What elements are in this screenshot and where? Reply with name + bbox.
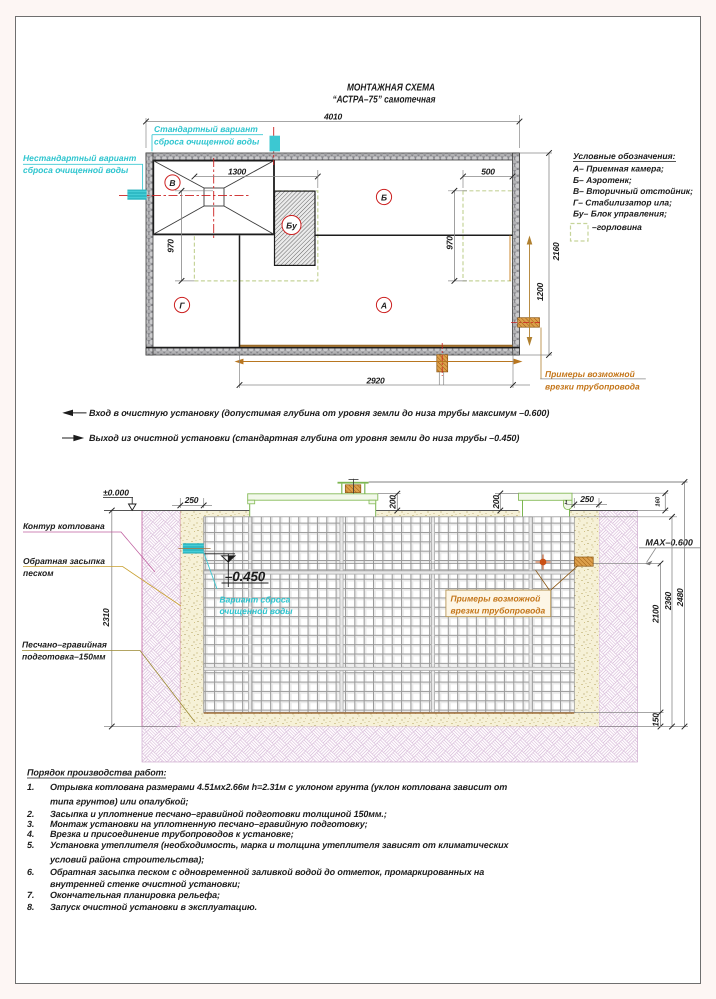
svg-text:Отрывка котлована размерами 4.: Отрывка котлована размерами 4.51мх2.66м … [50, 782, 507, 792]
svg-text:2480: 2480 [675, 588, 685, 608]
svg-text:4010: 4010 [323, 112, 343, 122]
svg-text:В– Вторичный отстойник;: В– Вторичный отстойник; [573, 186, 693, 196]
svg-text:МАХ–0.600: МАХ–0.600 [645, 537, 693, 547]
svg-text:250: 250 [184, 495, 199, 505]
svg-text:врезки трубопровода: врезки трубопровода [545, 382, 640, 392]
svg-text:Б– Аэротенк;: Б– Аэротенк; [573, 175, 632, 185]
svg-text:условий района строительства);: условий района строительства); [49, 855, 204, 865]
svg-text:Вход в очистную установку (доп: Вход в очистную установку (допустимая гл… [89, 408, 549, 418]
svg-text:200: 200 [491, 495, 501, 510]
svg-text:песком: песком [23, 568, 54, 578]
svg-text:В: В [169, 178, 175, 188]
svg-text:160: 160 [655, 496, 662, 507]
svg-text:очищенной воды: очищенной воды [220, 606, 294, 616]
svg-text:Обратная засыпка: Обратная засыпка [23, 556, 105, 566]
svg-text:1200: 1200 [535, 282, 545, 301]
svg-text:Вариант сброса: Вариант сброса [220, 595, 291, 605]
svg-text:Бу– Блок управления;: Бу– Блок управления; [573, 209, 667, 219]
svg-text:Примеры возможной: Примеры возможной [545, 369, 636, 379]
svg-text:типа грунтов) или опалубкой;: типа грунтов) или опалубкой; [50, 797, 189, 807]
svg-text:Условные обозначения:: Условные обозначения: [573, 151, 676, 161]
svg-text:–горловина: –горловина [592, 222, 642, 232]
svg-text:Стандартный вариант: Стандартный вариант [154, 124, 258, 134]
svg-text:Нестандартный вариант: Нестандартный вариант [23, 153, 137, 163]
svg-text:1300: 1300 [228, 167, 247, 177]
svg-text:Установка утеплителя (необходи: Установка утеплителя (необходимость, мар… [50, 840, 510, 850]
svg-text:1.: 1. [27, 782, 34, 792]
svg-text:Обратная засыпка песком с одно: Обратная засыпка песком с одновременной … [50, 867, 484, 877]
svg-text:970: 970 [445, 236, 455, 250]
svg-text:7.: 7. [27, 890, 34, 900]
svg-text:А– Приемная камера;: А– Приемная камера; [572, 164, 664, 174]
svg-text:подготовка–150мм: подготовка–150мм [22, 652, 106, 662]
svg-text:врезки трубопровода: врезки трубопровода [451, 606, 546, 616]
svg-text:Засыпка и уплотнение песчано–г: Засыпка и уплотнение песчано–гравийной п… [50, 809, 387, 819]
svg-text:250: 250 [579, 494, 594, 504]
svg-text:200: 200 [388, 495, 398, 510]
svg-text:1: 1 [565, 500, 568, 506]
svg-text:сброса очищенной воды: сброса очищенной воды [154, 137, 260, 147]
svg-text:2360: 2360 [663, 591, 673, 611]
svg-text:4.: 4. [26, 829, 34, 839]
svg-text:970: 970 [166, 239, 176, 253]
svg-text:сброса очищенной воды: сброса очищенной воды [23, 165, 129, 175]
svg-text:5.: 5. [27, 840, 34, 850]
svg-text:Окончательная планировка релье: Окончательная планировка рельефа; [50, 890, 220, 900]
svg-text:2920: 2920 [365, 376, 385, 386]
svg-text:Бу: Бу [286, 221, 298, 231]
svg-text:Песчано–гравийная: Песчано–гравийная [22, 640, 107, 650]
svg-text:3.: 3. [27, 819, 34, 829]
svg-text:МОНТАЖНАЯ СХЕМА: МОНТАЖНАЯ СХЕМА [347, 83, 435, 94]
svg-text:–0.450: –0.450 [225, 569, 266, 584]
svg-text:Примеры возможной: Примеры возможной [451, 594, 542, 604]
svg-text:2.: 2. [26, 809, 34, 819]
svg-text:±0.000: ±0.000 [103, 488, 129, 498]
svg-text:А: А [380, 301, 387, 311]
svg-text:внутренней стенке очистной уст: внутренней стенке очистной установки; [50, 879, 240, 889]
svg-text:2310: 2310 [101, 608, 111, 628]
svg-text:8.: 8. [27, 902, 34, 912]
svg-text:6.: 6. [27, 867, 34, 877]
svg-text:Выход из очистной установки (с: Выход из очистной установки (стандартная… [89, 433, 519, 443]
svg-text:Г: Г [179, 301, 185, 311]
svg-text:“АСТРА–75” самотечная: “АСТРА–75” самотечная [333, 95, 436, 106]
svg-text:Врезка и присоединение трубопр: Врезка и присоединение трубопроводов к у… [50, 829, 294, 839]
svg-text:Контур котлована: Контур котлована [23, 521, 105, 531]
svg-text:2160: 2160 [551, 242, 561, 262]
svg-text:Порядок производства работ:: Порядок производства работ: [27, 768, 167, 778]
svg-text:150: 150 [650, 713, 660, 727]
svg-text:Запуск очистной установки в эк: Запуск очистной установки в эксплуатацию… [50, 902, 257, 912]
svg-text:Г– Стабилизатор ила;: Г– Стабилизатор ила; [573, 197, 672, 207]
svg-text:Монтаж установки на уплотненну: Монтаж установки на уплотненную песчано–… [50, 819, 368, 829]
svg-text:2100: 2100 [650, 604, 660, 624]
svg-text:500: 500 [481, 167, 495, 177]
svg-text:Б: Б [381, 193, 387, 203]
